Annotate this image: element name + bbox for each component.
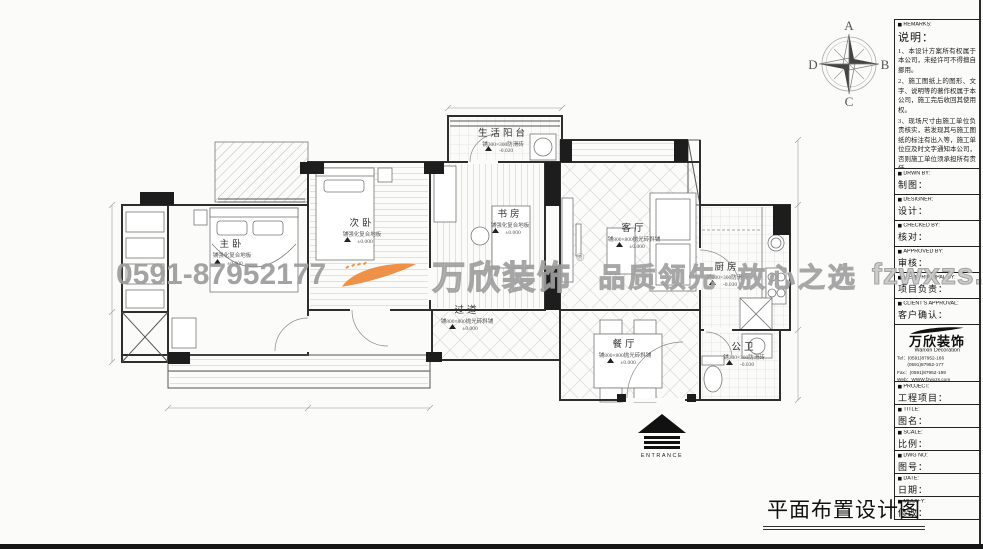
svg-text:±0.000: ±0.000: [357, 239, 373, 245]
svg-text:客厅: 客厅: [621, 222, 646, 234]
svg-text:铺300×300防滑砖: 铺300×300防滑砖: [706, 273, 748, 281]
field-bullet-icon: [898, 408, 902, 412]
floor-plan: 主卧 铺强化复合地板 ±0.000 次卧 铺强化复合地板 ±0.000 书房 铺…: [0, 0, 983, 549]
remark-item: 1、本设计方案所有权属于本公司，未经许可不得擅自挪用。: [898, 47, 976, 75]
svg-text:公卫: 公卫: [731, 342, 756, 353]
field-bullet-icon: [898, 431, 902, 435]
svg-text:厨房: 厨房: [714, 261, 739, 273]
field-bullet-icon: [898, 198, 902, 202]
company-box: 万欣装饰 Wanxin Decoration Tel：(0591)87952-1…: [894, 324, 980, 382]
svg-text:铺强化复合地板: 铺强化复合地板: [343, 230, 382, 238]
svg-text:铺800×800抛光砖斜铺: 铺800×800抛光砖斜铺: [608, 235, 661, 243]
field-bullet-icon: [898, 385, 902, 389]
titleblock: REMARKS: 说明： 1、本设计方案所有权属于本公司，未经许可不得擅自挪用。…: [894, 20, 980, 520]
svg-text:-0.030: -0.030: [723, 282, 737, 288]
field-approved-by: APPROVED BY: 审核：: [894, 246, 980, 273]
svg-text:铺800×800抛光砖斜铺: 铺800×800抛光砖斜铺: [441, 317, 494, 325]
remarks-cn-label: 说明：: [898, 29, 976, 45]
company-brand-cn: 万欣装饰: [909, 335, 965, 348]
field-scale: SCALE: 比例：: [894, 427, 980, 451]
field-bullet-icon: [898, 302, 902, 306]
svg-text:书房: 书房: [497, 208, 522, 220]
svg-text:±0.000: ±0.000: [462, 326, 478, 332]
svg-text:铺强化复合地板: 铺强化复合地板: [213, 251, 252, 259]
svg-text:铺强化复合地板: 铺强化复合地板: [491, 221, 530, 229]
field-project: PROJECT: 工程项目：: [894, 381, 980, 405]
compass-west-label: D: [808, 57, 817, 72]
remark-item: 3、现场尺寸由施工单位负责核实，若发现其与施工图纸的标注有出入等，施工单位应及时…: [898, 117, 976, 169]
field-item-principal: ITEM PRINCIPAL BY: 项目负责：: [894, 272, 980, 299]
svg-text:铺300×300防滑砖: 铺300×300防滑砖: [723, 353, 765, 361]
svg-text:-0.020: -0.020: [499, 148, 513, 154]
field-drawn-by: DRWN BY: 制图：: [894, 168, 980, 195]
svg-text:铺800×800抛光砖斜铺: 铺800×800抛光砖斜铺: [599, 351, 652, 359]
remark-item: 2、施工图纸上的图形、文字、说明等的著作权属于本公司，施工完后收回其使用权。: [898, 77, 976, 115]
field-bullet-icon: [898, 23, 902, 27]
compass-north-label: A: [844, 18, 854, 33]
svg-text:-0.030: -0.030: [740, 362, 754, 368]
entrance-label: ENTRANCE: [641, 453, 683, 459]
svg-text:±0.000: ±0.000: [629, 244, 645, 250]
svg-text:主卧: 主卧: [219, 238, 244, 250]
company-contact: Tel：(0591)87952-166 (0591)87952-177 Fax：…: [897, 355, 966, 382]
sheet-frame-bottom: [0, 544, 983, 549]
field-dwg-no: DWG NO: 图号：: [894, 450, 980, 474]
sheet-frame-right: [979, 0, 981, 549]
field-bullet-icon: [898, 172, 902, 176]
company-brand-en: Wanxin Decoration: [914, 348, 959, 353]
svg-text:生活阳台: 生活阳台: [478, 127, 528, 139]
field-bullet-icon: [898, 454, 902, 458]
remarks-en-label: REMARKS:: [903, 22, 931, 27]
svg-text:餐厅: 餐厅: [612, 338, 637, 350]
field-client-approval: CLIENT'S APPROVAL: 客户确认：: [894, 298, 980, 325]
compass-icon: A B C D: [808, 18, 889, 109]
field-checked-by: CHECKED BY: 核对：: [894, 220, 980, 247]
field-bullet-icon: [898, 276, 902, 280]
field-designer: DESIGNER: 设计：: [894, 194, 980, 221]
remarks-box: REMARKS: 说明： 1、本设计方案所有权属于本公司，未经许可不得擅自挪用。…: [894, 19, 980, 169]
svg-text:±0.000: ±0.000: [227, 261, 243, 267]
drawing-caption: 平面布置设计图: [763, 494, 925, 530]
entrance-marker: ENTRANCE: [638, 414, 686, 459]
svg-text:过道: 过道: [454, 304, 479, 316]
field-title: TITLE: 图名：: [894, 404, 980, 428]
svg-text:±0.000: ±0.000: [620, 360, 636, 366]
svg-text:次卧: 次卧: [349, 217, 374, 229]
compass-south-label: C: [845, 94, 854, 109]
field-bullet-icon: [898, 250, 902, 254]
field-bullet-icon: [898, 477, 902, 481]
compass-east-label: B: [881, 57, 890, 72]
svg-text:±0.000: ±0.000: [505, 230, 521, 236]
field-bullet-icon: [898, 224, 902, 228]
